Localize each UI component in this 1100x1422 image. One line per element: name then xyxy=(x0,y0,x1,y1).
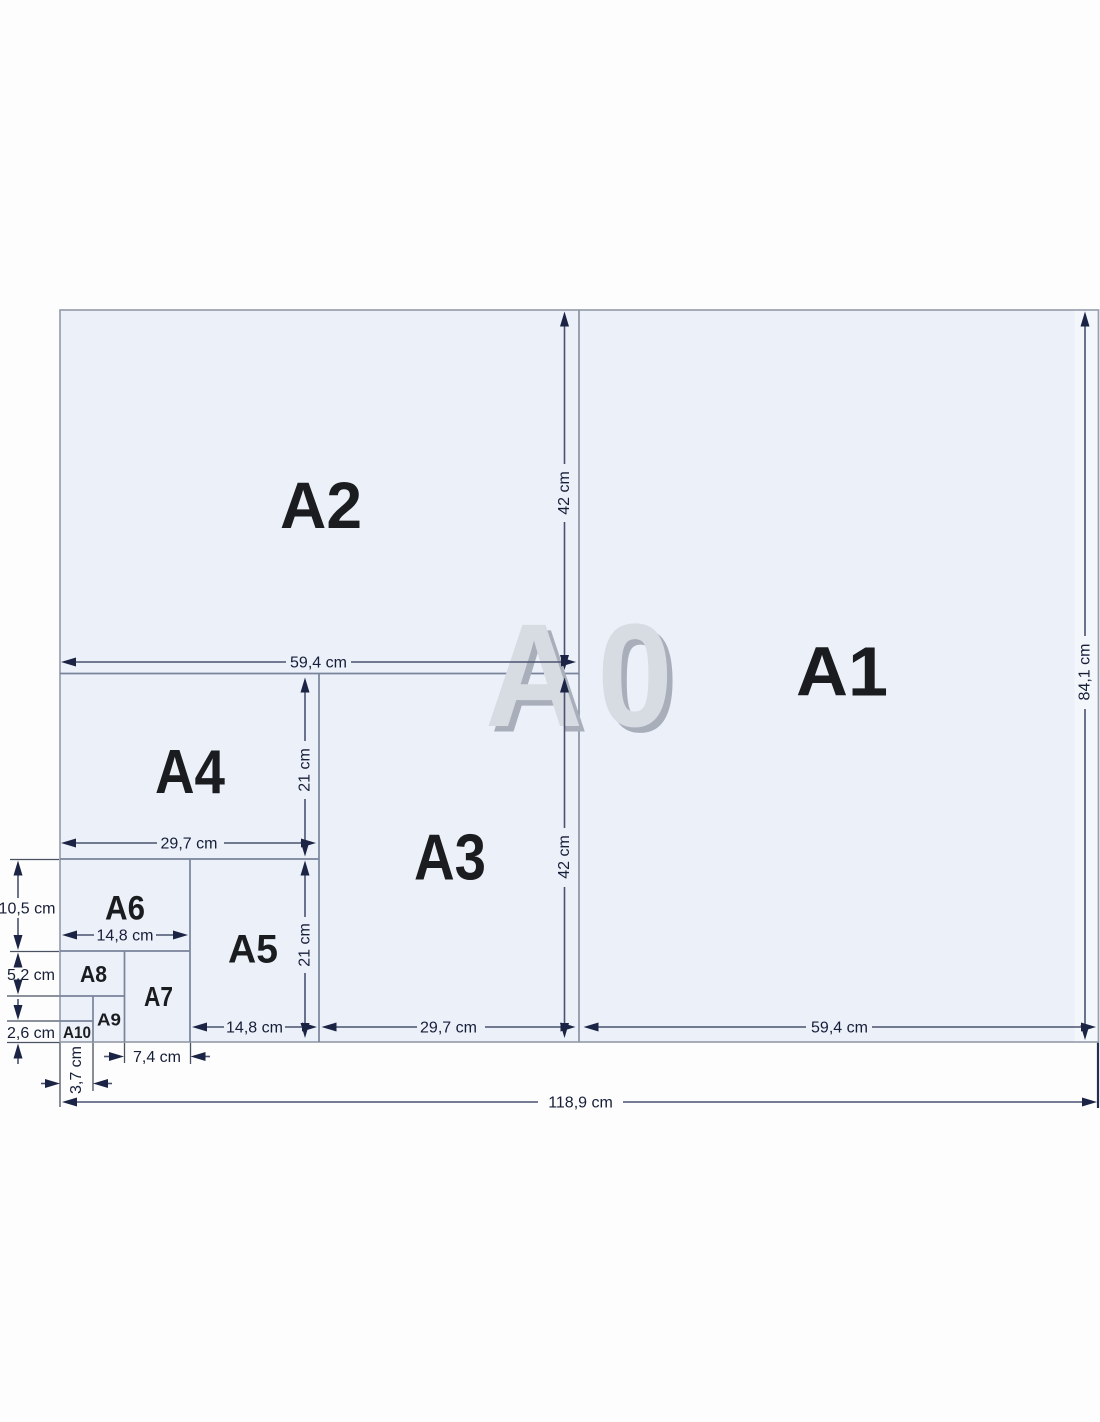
svg-text:0: 0 xyxy=(597,593,672,757)
svg-text:A3: A3 xyxy=(414,821,486,894)
svg-text:A10: A10 xyxy=(63,1023,91,1042)
svg-text:21 cm: 21 cm xyxy=(297,923,314,967)
svg-text:10,5 cm: 10,5 cm xyxy=(0,901,55,918)
svg-text:21 cm: 21 cm xyxy=(297,748,314,792)
svg-text:59,4 cm: 59,4 cm xyxy=(290,655,347,672)
svg-text:118,9 cm: 118,9 cm xyxy=(548,1095,613,1112)
svg-text:A4: A4 xyxy=(155,738,225,807)
svg-text:A7: A7 xyxy=(144,981,173,1012)
svg-text:A: A xyxy=(485,593,583,757)
svg-text:A5: A5 xyxy=(228,928,278,972)
svg-text:5,2 cm: 5,2 cm xyxy=(7,967,55,984)
svg-text:A9: A9 xyxy=(97,1010,121,1030)
svg-text:14,8 cm: 14,8 cm xyxy=(97,928,154,945)
svg-text:A6: A6 xyxy=(105,890,145,928)
svg-text:A1: A1 xyxy=(796,633,888,711)
svg-text:29,7 cm: 29,7 cm xyxy=(420,1020,477,1037)
svg-text:59,4 cm: 59,4 cm xyxy=(811,1020,868,1037)
svg-text:14,8 cm: 14,8 cm xyxy=(226,1020,283,1037)
svg-text:2,6 cm: 2,6 cm xyxy=(7,1025,55,1042)
svg-text:84,1 cm: 84,1 cm xyxy=(1077,644,1094,701)
svg-text:42 cm: 42 cm xyxy=(556,471,573,515)
svg-text:42 cm: 42 cm xyxy=(556,835,573,879)
svg-text:7,4 cm: 7,4 cm xyxy=(133,1049,181,1066)
svg-text:3,7 cm: 3,7 cm xyxy=(68,1046,85,1094)
svg-text:A8: A8 xyxy=(80,961,107,987)
svg-text:A2: A2 xyxy=(280,468,362,542)
svg-text:29,7 cm: 29,7 cm xyxy=(161,836,218,853)
